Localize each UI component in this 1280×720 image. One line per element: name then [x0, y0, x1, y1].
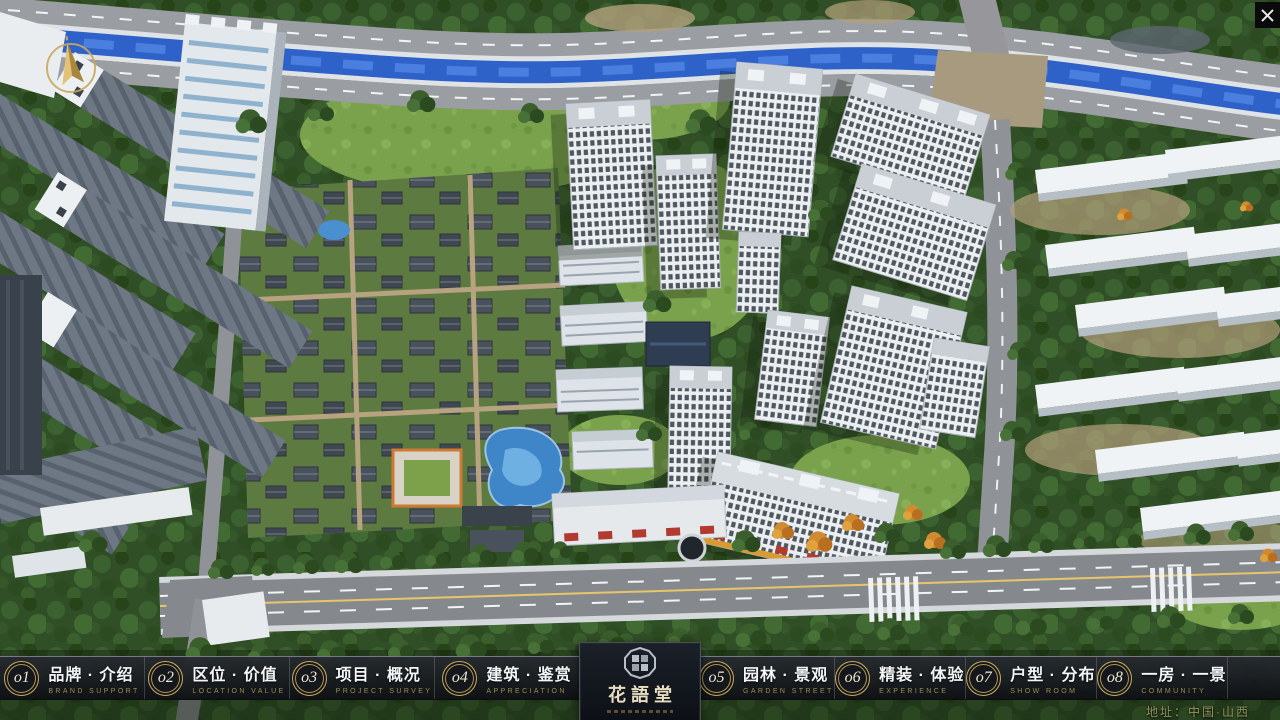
nav-item-garden[interactable]: o5 园林 · 景观 GARDEN STREET [699, 657, 834, 699]
close-button[interactable] [1255, 2, 1280, 28]
nav-label-zh: 区位 · 价值 [192, 661, 277, 685]
nav-badge-4: o4 [442, 661, 477, 696]
nav-item-floorplan[interactable]: o7 户型 · 分布 SHOW ROOM [965, 657, 1096, 699]
nav-label-zh: 建筑 · 鉴赏 [486, 661, 571, 685]
nav-label-en: BRAND SUPPORT [48, 688, 139, 695]
nav-label-en: APPRECIATION [486, 688, 566, 695]
nav-label-zh: 户型 · 分布 [1010, 661, 1095, 685]
sales-presentation-app: o1 品牌 · 介绍 BRAND SUPPORT o2 区位 · 价值 LOCA… [0, 0, 1280, 720]
project-address: 地址：中国·山西 [1146, 703, 1250, 720]
tall-blue-building [164, 14, 287, 232]
nav-label-en: EXPERIENCE [879, 688, 948, 695]
nav-item-room-view[interactable]: o8 一房 · 一景 COMMUNITY [1096, 657, 1227, 699]
east-road [992, 120, 1002, 565]
entrance-circle [679, 535, 705, 561]
orange-building [393, 450, 461, 506]
project-name-subtitle-line [607, 710, 673, 713]
nav-item-project[interactable]: o3 项目 · 概况 PROJECT SURVEY [289, 657, 434, 699]
nav-badge-8: o8 [1097, 661, 1132, 696]
nav-item-location[interactable]: o2 区位 · 价值 LOCATION VALUE [144, 657, 289, 699]
nav-label-zh: 园林 · 景观 [743, 661, 828, 685]
nav-badge-2: o2 [148, 661, 183, 696]
nav-label-zh: 精装 · 体验 [879, 661, 964, 685]
nav-label-zh: 品牌 · 介绍 [48, 661, 133, 685]
nav-badge-1: o1 [4, 661, 39, 696]
nav-label-en: COMMUNITY [1141, 688, 1206, 695]
aerial-map[interactable] [0, 0, 1280, 720]
seal-icon [624, 647, 656, 679]
nav-badge-6: o6 [835, 661, 870, 696]
nav-item-experience[interactable]: o6 精装 · 体验 EXPERIENCE [834, 657, 965, 699]
nav-label-en: LOCATION VALUE [192, 688, 285, 695]
nav-item-architecture[interactable]: o4 建筑 · 鉴赏 APPRECIATION [434, 657, 579, 699]
nav-end-spacer [1227, 657, 1280, 699]
nav-badge-5: o5 [699, 661, 734, 696]
nav-item-brand[interactable]: o1 品牌 · 介绍 BRAND SUPPORT [0, 657, 144, 699]
compass-icon [42, 34, 100, 98]
project-logo-panel[interactable]: 花語堂 [579, 642, 701, 720]
nav-badge-7: o7 [966, 661, 1001, 696]
nav-label-en: PROJECT SURVEY [336, 688, 433, 695]
close-icon [1260, 8, 1275, 23]
nav-label-en: GARDEN STREET [743, 688, 834, 695]
nav-label-zh: 一房 · 一景 [1141, 661, 1226, 685]
nav-label-zh: 项目 · 概况 [336, 661, 421, 685]
project-name: 花語堂 [608, 681, 677, 707]
nav-label-en: SHOW ROOM [1010, 688, 1077, 695]
nav-badge-3: o3 [292, 661, 327, 696]
